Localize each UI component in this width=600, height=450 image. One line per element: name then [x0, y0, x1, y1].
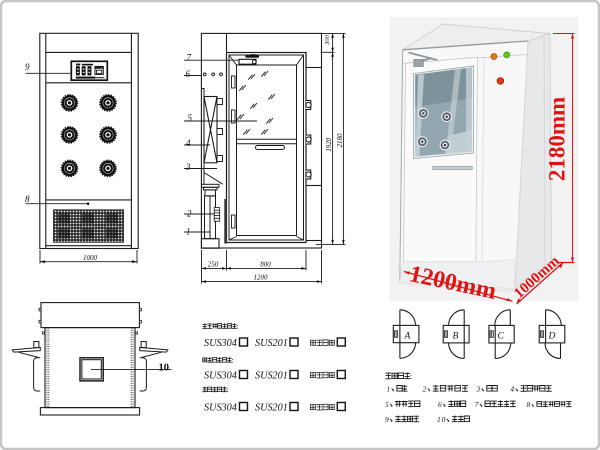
svg-text:1: 1 — [186, 227, 191, 237]
svg-text:1000: 1000 — [83, 254, 98, 262]
svg-text:7: 7 — [475, 400, 479, 409]
svg-text:0: 0 — [442, 415, 446, 424]
svg-text:2180mm: 2180mm — [545, 97, 570, 181]
svg-text:2: 2 — [423, 385, 427, 394]
svg-text:9: 9 — [385, 415, 389, 424]
svg-text:1: 1 — [437, 415, 441, 424]
svg-text:800: 800 — [260, 260, 271, 268]
svg-text:2180: 2180 — [336, 133, 344, 148]
svg-text:3: 3 — [475, 385, 480, 394]
svg-text:D: D — [548, 332, 556, 342]
svg-text:4: 4 — [510, 385, 514, 394]
svg-text:SUS304: SUS304 — [204, 371, 237, 382]
svg-text:SUS201: SUS201 — [255, 338, 288, 349]
svg-text:1200: 1200 — [254, 274, 269, 282]
svg-text:7: 7 — [187, 53, 192, 63]
svg-text:1: 1 — [387, 385, 391, 394]
svg-text:8: 8 — [25, 194, 30, 204]
svg-text:6: 6 — [186, 69, 191, 79]
svg-text:10: 10 — [159, 362, 170, 373]
svg-text:4: 4 — [186, 138, 191, 148]
svg-text:SUS201: SUS201 — [255, 371, 288, 382]
svg-text:3: 3 — [185, 162, 191, 172]
svg-text:300: 300 — [324, 34, 331, 46]
svg-text:SUS304: SUS304 — [204, 338, 237, 349]
svg-text:2: 2 — [187, 209, 192, 219]
svg-text:8: 8 — [527, 400, 531, 409]
svg-text:1920: 1920 — [325, 137, 333, 152]
svg-text:C: C — [498, 332, 505, 342]
svg-text:A: A — [404, 332, 411, 342]
svg-text:B: B — [453, 332, 459, 342]
svg-text:6: 6 — [438, 400, 442, 409]
svg-text:250: 250 — [208, 260, 219, 268]
svg-text:5: 5 — [188, 113, 193, 123]
svg-text:SUS201: SUS201 — [255, 403, 288, 414]
svg-text:9: 9 — [25, 62, 30, 72]
svg-text:SUS304: SUS304 — [204, 403, 237, 414]
svg-text:5: 5 — [385, 400, 389, 409]
